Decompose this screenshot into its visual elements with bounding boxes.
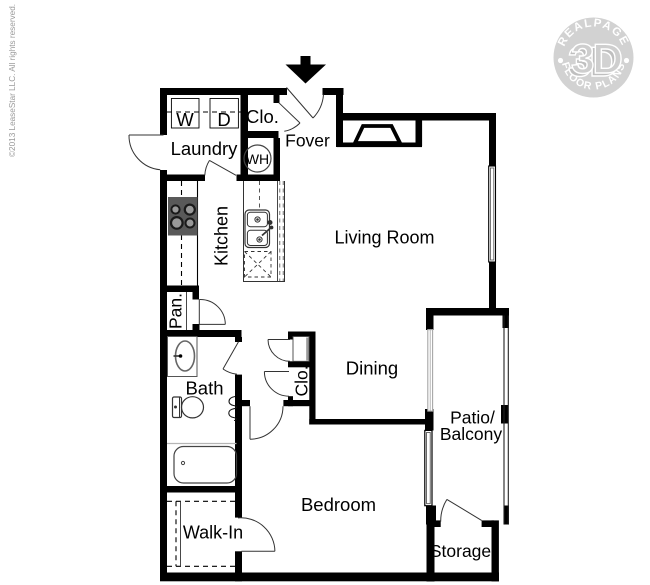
svg-text:Pan.: Pan. [166,293,186,329]
svg-text:Clo.: Clo. [292,365,312,396]
svg-text:D: D [217,109,230,130]
svg-text:Clo.: Clo. [246,106,279,127]
svg-text:Bath: Bath [185,378,223,399]
svg-text:Laundry: Laundry [171,138,239,159]
svg-text:Bedroom: Bedroom [301,494,376,515]
svg-text:Dining: Dining [346,358,398,379]
svg-text:Storage: Storage [430,541,491,561]
svg-text:Balcony: Balcony [440,424,503,444]
svg-text:3D: 3D [571,35,621,82]
svg-text:Kitchen: Kitchen [212,206,232,266]
svg-text:Walk-In: Walk-In [183,523,243,543]
svg-text:©2013 LeaseStar LLC. All right: ©2013 LeaseStar LLC. All rights reserved… [8,4,17,157]
svg-text:WH: WH [246,151,269,167]
svg-text:Living Room: Living Room [334,228,434,248]
svg-text:Fover: Fover [285,131,330,151]
svg-text:W: W [176,109,194,130]
